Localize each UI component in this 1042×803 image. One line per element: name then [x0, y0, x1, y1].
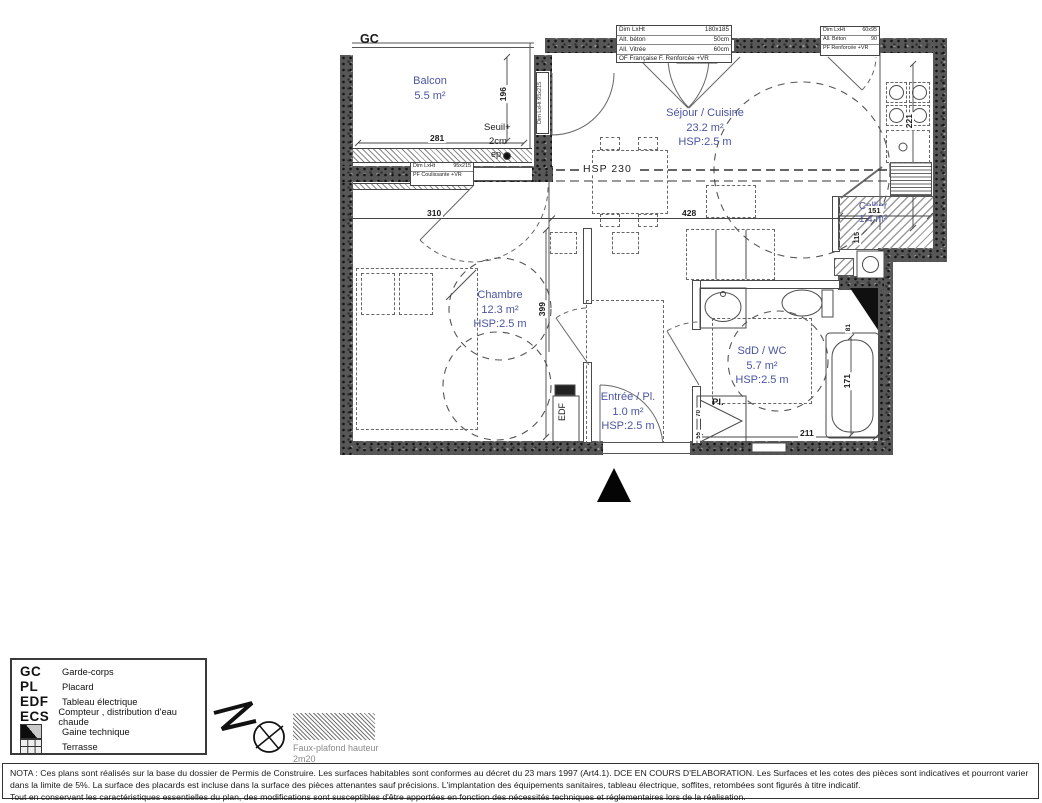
- room-hsp: HSP:2.5 m: [630, 135, 780, 150]
- legend-label: Tableau électrique: [62, 697, 137, 707]
- dim-placard-depth: 70: [696, 408, 702, 419]
- room-name: Séjour / Cuisine: [630, 106, 780, 121]
- dim-kitchen-height: 221: [904, 112, 914, 130]
- room-label-balcon: Balcon 5.5 m²: [370, 74, 490, 103]
- room-label-sdd: SdD / WC 5.7 m² HSP:2.5 m: [707, 344, 817, 388]
- legend: GC Garde-corps PL Placard EDF Tableau él…: [10, 658, 207, 755]
- side-furniture-1: [550, 232, 577, 254]
- legend-label: Gaine technique: [62, 727, 130, 737]
- dim-balcon-width: 281: [428, 133, 446, 143]
- window-sill-sdd: [752, 443, 786, 452]
- door-leaf-chambre: [556, 318, 589, 365]
- nota-line-1: NOTA : Ces plans sont réalisés sur la ba…: [10, 767, 1031, 779]
- room-area: 23.2 m²: [630, 121, 780, 136]
- door-arc-window-small: [862, 57, 876, 90]
- tv-cabinet: [706, 185, 756, 218]
- bed-pillow-2: [399, 273, 433, 315]
- room-name: SdD / WC: [707, 344, 817, 359]
- wc-bowl: [782, 290, 822, 316]
- win-spec-value: 90: [871, 37, 877, 42]
- dim-bath-width: 81: [845, 322, 852, 333]
- window-spec-box-chambre: Dim LxHt95x215 PF Coulissante +VR: [410, 162, 474, 186]
- legend-row-terrasse: Terrasse: [20, 739, 197, 754]
- nota-disclaimer: NOTA : Ces plans sont réalisés sur la ba…: [2, 763, 1039, 799]
- legend-row-gaine: Gaine technique: [20, 724, 197, 739]
- window-spec-box-balcony-door: Dim LxHt 95x215: [536, 72, 549, 134]
- legend-label: Placard: [62, 682, 94, 692]
- placard-annotation: Pl.: [712, 397, 724, 408]
- window-spec-box-main: Dim LxHt180x185 Alt. béton50cm All. Vitr…: [616, 25, 732, 63]
- win-spec-label: Dim LxHt 95x215: [537, 82, 543, 124]
- legend-abbr: PL: [20, 679, 62, 694]
- room-name: Entrée / Pl.: [568, 390, 688, 405]
- nota-line-2: dans la limite de 5%. La surface des pla…: [10, 779, 1031, 791]
- legend-abbr: ECS: [20, 709, 58, 724]
- dim-chambre-width: 310: [425, 208, 443, 218]
- room-area: 5.5 m²: [370, 89, 490, 104]
- legend-row-gc: GC Garde-corps: [20, 664, 197, 679]
- wc-tank: [822, 290, 833, 317]
- door-arc-sdd: [667, 322, 699, 331]
- dim-cellier-width: 151: [866, 206, 883, 215]
- win-spec-value: 180x185: [705, 27, 729, 33]
- door-leaf-window-small: [828, 57, 862, 90]
- dim-balcon-height: 196: [498, 85, 508, 103]
- dim-sdd-width: 211: [798, 428, 816, 438]
- door-arc-chambre: [556, 308, 589, 318]
- bed-pillow-1: [361, 273, 395, 315]
- win-spec-label: All. Vitrée: [619, 47, 646, 53]
- dim-placard-width: 55: [696, 430, 702, 441]
- door-leaf-sdd: [667, 331, 699, 385]
- north-arrow-icon: [212, 697, 292, 757]
- legend-label: Terrasse: [62, 742, 98, 752]
- room-hsp: HSP:2.5 m: [707, 373, 817, 388]
- dim-bath-height: 171: [842, 372, 852, 390]
- room-hsp: HSP:2.5 m: [440, 317, 560, 332]
- terrasse-icon: [20, 739, 42, 754]
- edf-annotation: EDF: [557, 403, 567, 421]
- win-spec-value: 95x215: [453, 164, 471, 169]
- legend-abbr: GC: [20, 664, 62, 679]
- win-spec-label: PF Coulissante +VR: [413, 173, 462, 178]
- win-spec-label: Dim LxHt: [413, 164, 435, 169]
- kitchen-drainer: [890, 162, 932, 196]
- dim-chambre-height: 399: [537, 300, 547, 318]
- window-spec-box-small: Dim LxHt60x95 All. Béton90 PF Renforcée …: [820, 26, 880, 56]
- dining-table: [592, 150, 668, 214]
- bathtub-inner: [832, 340, 873, 432]
- room-hsp: HSP:2.5 m: [568, 419, 688, 434]
- door-arc-chambre-pf: [420, 186, 548, 262]
- washing-machine: [857, 251, 884, 278]
- floor-plan-page: { "colors": { "room_label": "#4a55a2", "…: [0, 0, 1042, 800]
- ep-annotation: ep: [491, 149, 501, 159]
- faux-plafond-swatch: [293, 713, 375, 740]
- door-opening-entrance: [603, 442, 690, 454]
- room-area: 1.4 m²: [838, 213, 908, 226]
- chair-1: [600, 137, 620, 150]
- gc-annotation: GC: [360, 32, 379, 46]
- chair-4: [638, 214, 658, 227]
- chair-3: [600, 214, 620, 227]
- door-arc-french-left: [688, 57, 709, 108]
- door-opening-chambre-pf: [473, 167, 532, 181]
- door-arc-french-right: [668, 57, 689, 108]
- plan-linework: [0, 0, 1042, 540]
- win-spec-label: OF Française F. Renforcée +VR: [619, 56, 709, 62]
- side-furniture-2: [612, 232, 639, 254]
- win-spec-label: All. Béton: [823, 37, 846, 42]
- door-leaf-cellier: [841, 167, 882, 198]
- legend-abbr: EDF: [20, 694, 62, 709]
- door-leaf-french-left: [637, 57, 688, 108]
- dim-sejour-width: 428: [680, 208, 698, 218]
- nota-line-3: Tout en conservant les caractéristiques …: [10, 791, 1031, 803]
- hob-plate-2: [909, 82, 930, 103]
- hsp230-annotation: HSP 230: [580, 163, 635, 175]
- win-spec-value: 60x95: [862, 28, 877, 33]
- gaine-technique-icon: [20, 724, 42, 739]
- room-area: 1.0 m²: [568, 405, 688, 420]
- hob-plate-1: [886, 82, 907, 103]
- seuil-annotation-1: Seuil+: [484, 122, 511, 133]
- legend-row-pl: PL Placard: [20, 679, 197, 694]
- legend-label: Garde-corps: [62, 667, 114, 677]
- oven: [886, 130, 930, 163]
- door-leaf-french-right: [689, 57, 740, 108]
- win-spec-value: 50cm: [714, 37, 729, 43]
- dim-cellier-height: 115: [854, 230, 861, 245]
- win-spec-label: Dim LxHt: [823, 28, 845, 33]
- win-spec-value: 60cm: [714, 47, 729, 53]
- win-spec-label: PF Renforcée +VR: [823, 46, 868, 51]
- door-arc-balcon: [552, 73, 614, 135]
- win-spec-label: Dim LxHt: [619, 27, 645, 33]
- legend-row-ecs: ECS Compteur , distribution d'eau chaude: [20, 709, 197, 724]
- sofa: [686, 229, 775, 280]
- room-area: 5.7 m²: [707, 359, 817, 374]
- faux-plafond-caption-line1: Faux-plafond hauteur: [293, 743, 403, 754]
- room-label-entree: Entrée / Pl. 1.0 m² HSP:2.5 m: [568, 390, 688, 434]
- room-label-sejour: Séjour / Cuisine 23.2 m² HSP:2.5 m: [630, 106, 780, 150]
- win-spec-label: Alt. béton: [619, 37, 646, 43]
- room-name: Balcon: [370, 74, 490, 89]
- entrance-marker-triangle: [597, 468, 631, 502]
- seuil-annotation-2: 2cm: [489, 136, 507, 147]
- ep-dot: [504, 153, 511, 160]
